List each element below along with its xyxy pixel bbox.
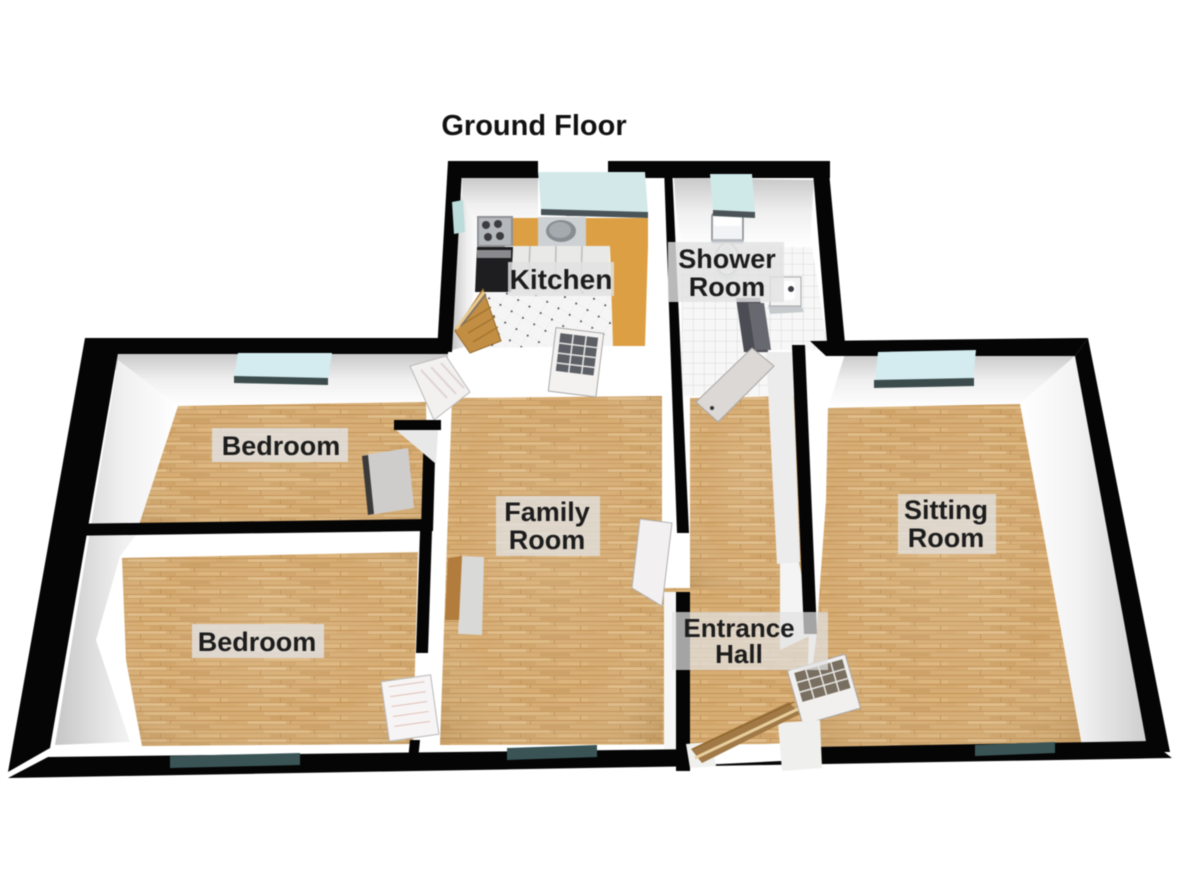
svg-text:Hall: Hall <box>715 639 763 669</box>
svg-text:Room: Room <box>908 523 985 553</box>
svg-text:Ground Floor: Ground Floor <box>441 110 626 142</box>
svg-text:Bedroom: Bedroom <box>198 627 317 657</box>
svg-text:Room: Room <box>509 525 586 555</box>
svg-text:Sitting: Sitting <box>904 495 988 525</box>
svg-text:Family: Family <box>504 497 590 527</box>
svg-text:Room: Room <box>689 272 766 302</box>
svg-text:Shower: Shower <box>678 244 776 274</box>
svg-text:Bedroom: Bedroom <box>222 431 341 461</box>
svg-text:Kitchen: Kitchen <box>510 264 613 295</box>
